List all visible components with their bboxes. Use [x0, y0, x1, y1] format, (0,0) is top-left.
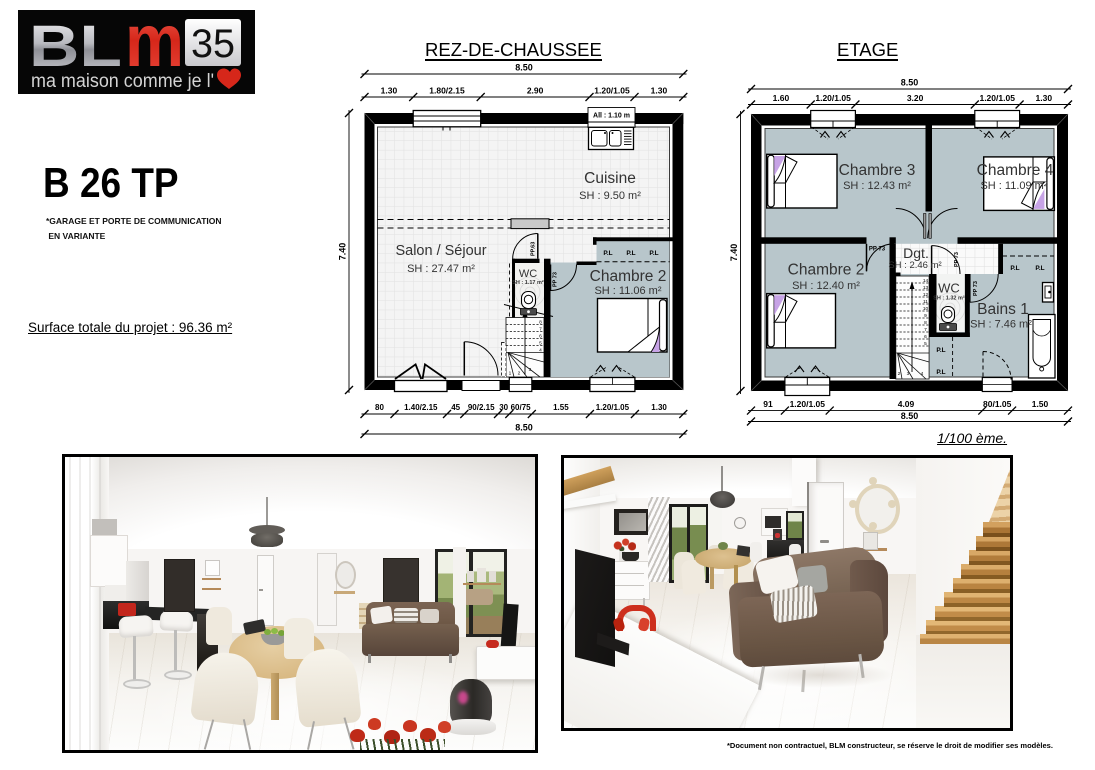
svg-text:1.80/2.15: 1.80/2.15 — [429, 86, 465, 96]
svg-text:SH : 1.32 m²: SH : 1.32 m² — [933, 295, 965, 302]
svg-text:1.30: 1.30 — [651, 403, 667, 412]
svg-text:SH : 7.46 m²: SH : 7.46 m² — [970, 319, 1032, 331]
svg-text:1.30: 1.30 — [381, 86, 398, 96]
svg-text:1.20/1.05: 1.20/1.05 — [596, 403, 630, 412]
svg-text:4: 4 — [921, 371, 924, 377]
svg-text:80/1.05: 80/1.05 — [983, 399, 1012, 409]
svg-text:SH : 12.40 m²: SH : 12.40 m² — [792, 280, 860, 292]
svg-text:SH : 12.43 m²: SH : 12.43 m² — [843, 180, 911, 192]
svg-text:P.L: P.L — [649, 250, 658, 257]
svg-text:PP 73: PP 73 — [869, 247, 886, 253]
svg-text:8.50: 8.50 — [515, 423, 533, 433]
svg-text:13: 13 — [923, 285, 929, 291]
svg-text:1.20/1.05: 1.20/1.05 — [594, 86, 630, 96]
svg-text:7.40: 7.40 — [729, 244, 739, 262]
svg-text:3: 3 — [529, 367, 532, 373]
svg-text:PP.63: PP.63 — [531, 242, 537, 256]
svg-text:PP 73: PP 73 — [973, 281, 979, 296]
svg-text:60/75: 60/75 — [511, 403, 532, 412]
svg-text:Dgt.: Dgt. — [903, 245, 929, 261]
svg-text:7.40: 7.40 — [338, 243, 348, 261]
svg-text:P.L: P.L — [603, 250, 612, 257]
svg-text:2: 2 — [518, 371, 521, 377]
svg-text:6: 6 — [924, 334, 927, 340]
svg-text:1.40/2.15: 1.40/2.15 — [404, 403, 438, 412]
svg-text:SH : 9.50 m²: SH : 9.50 m² — [579, 190, 641, 202]
svg-text:1.60: 1.60 — [773, 93, 790, 103]
svg-text:Chambre 2: Chambre 2 — [788, 262, 865, 279]
svg-text:WC: WC — [938, 281, 960, 296]
svg-text:8: 8 — [924, 320, 927, 326]
svg-text:SH : 27.47 m²: SH : 27.47 m² — [407, 263, 475, 275]
svg-text:Chambre 2: Chambre 2 — [590, 268, 667, 285]
svg-text:1.50: 1.50 — [1032, 399, 1049, 409]
svg-text:Salon / Séjour: Salon / Séjour — [395, 243, 486, 259]
svg-text:Chambre 4: Chambre 4 — [977, 162, 1054, 179]
svg-text:P.L: P.L — [936, 347, 945, 354]
svg-text:8.50: 8.50 — [901, 411, 919, 421]
svg-text:90/2.15: 90/2.15 — [468, 403, 495, 412]
svg-text:7: 7 — [539, 327, 542, 333]
svg-text:5: 5 — [539, 341, 542, 347]
svg-text:10: 10 — [923, 306, 929, 312]
svg-text:8.50: 8.50 — [515, 63, 533, 73]
svg-text:7: 7 — [924, 327, 927, 333]
svg-text:45: 45 — [451, 403, 460, 412]
svg-text:1.30: 1.30 — [651, 86, 668, 96]
svg-text:3: 3 — [907, 371, 910, 377]
svg-text:5: 5 — [924, 341, 927, 347]
svg-text:4.09: 4.09 — [898, 399, 915, 409]
svg-text:8.50: 8.50 — [901, 78, 919, 88]
svg-text:3.20: 3.20 — [907, 93, 924, 103]
svg-text:1.20/1.05: 1.20/1.05 — [790, 399, 826, 409]
svg-text:80: 80 — [375, 403, 384, 412]
svg-text:2: 2 — [898, 371, 901, 377]
svg-text:91: 91 — [763, 399, 773, 409]
svg-text:11: 11 — [923, 299, 928, 305]
svg-text:Cuisine: Cuisine — [584, 170, 636, 187]
svg-text:P.L: P.L — [1035, 265, 1044, 272]
svg-text:1.55: 1.55 — [553, 403, 569, 412]
svg-text:12: 12 — [923, 292, 929, 298]
svg-text:8: 8 — [539, 320, 542, 326]
svg-text:P.L: P.L — [626, 250, 635, 257]
svg-text:14: 14 — [923, 278, 929, 284]
svg-text:1.20/1.05: 1.20/1.05 — [815, 93, 851, 103]
svg-text:SH : 1.17 m²: SH : 1.17 m² — [512, 279, 544, 286]
svg-text:PP 73: PP 73 — [553, 272, 559, 287]
svg-text:9: 9 — [924, 313, 927, 319]
svg-text:SH : 11.09 m²: SH : 11.09 m² — [980, 180, 1047, 192]
svg-text:SH : 11.06 m²: SH : 11.06 m² — [594, 285, 661, 297]
svg-text:6: 6 — [539, 334, 542, 340]
svg-text:PP 73: PP 73 — [954, 252, 960, 267]
svg-text:P.L: P.L — [1010, 265, 1019, 272]
svg-text:2.90: 2.90 — [527, 86, 544, 96]
svg-text:SH : 2.46 m²: SH : 2.46 m² — [888, 260, 941, 271]
svg-text:1.30: 1.30 — [1036, 93, 1053, 103]
svg-text:1: 1 — [509, 371, 512, 377]
svg-text:WC: WC — [519, 268, 537, 280]
svg-text:P.L: P.L — [936, 369, 945, 376]
svg-text:4: 4 — [539, 348, 542, 354]
svg-text:1.20/1.05: 1.20/1.05 — [979, 93, 1015, 103]
svg-text:30: 30 — [499, 403, 508, 412]
svg-text:All : 1.10 m: All : 1.10 m — [593, 113, 630, 120]
svg-text:Bains 1: Bains 1 — [977, 301, 1029, 318]
svg-text:Chambre 3: Chambre 3 — [839, 162, 916, 179]
